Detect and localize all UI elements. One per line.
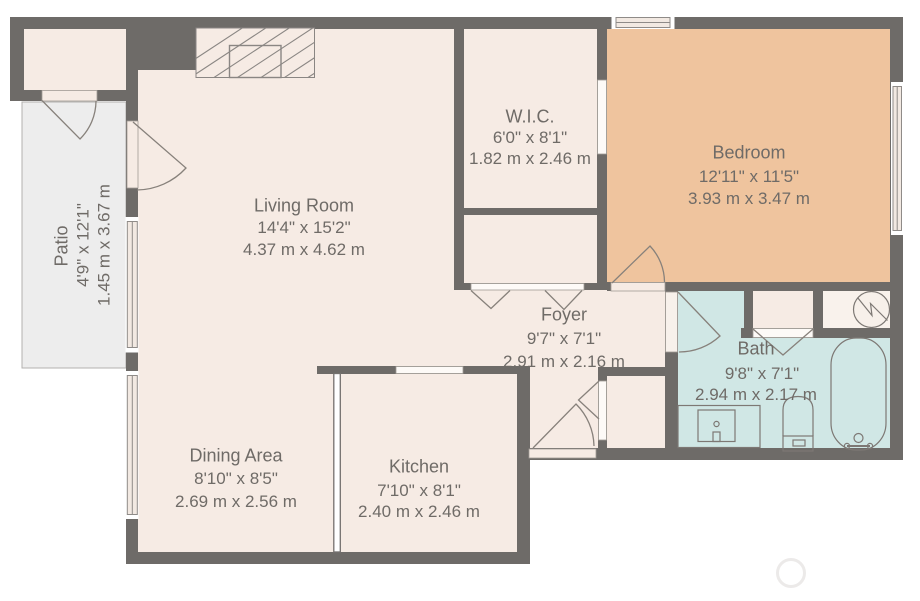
- svg-text:2.91 m x 2.16 m: 2.91 m x 2.16 m: [503, 352, 625, 371]
- svg-text:9'7" x 7'1": 9'7" x 7'1": [527, 329, 601, 348]
- svg-text:Kitchen: Kitchen: [389, 456, 449, 476]
- svg-text:Bath: Bath: [737, 338, 774, 358]
- svg-text:Living Room: Living Room: [254, 195, 354, 215]
- svg-text:8'10" x 8'5": 8'10" x 8'5": [194, 469, 278, 488]
- svg-text:Bedroom: Bedroom: [712, 142, 785, 162]
- svg-text:Foyer: Foyer: [541, 304, 587, 324]
- svg-text:2.69 m x 2.56 m: 2.69 m x 2.56 m: [175, 492, 297, 511]
- svg-text:Patio: Patio: [52, 225, 72, 266]
- svg-text:12'11" x 11'5": 12'11" x 11'5": [699, 167, 799, 186]
- svg-text:6'0" x 8'1": 6'0" x 8'1": [493, 128, 567, 147]
- svg-text:W.I.C.: W.I.C.: [506, 106, 555, 126]
- svg-text:4'9" x 12'1": 4'9" x 12'1": [74, 203, 93, 287]
- svg-text:14'4" x 15'2": 14'4" x 15'2": [257, 218, 350, 237]
- svg-text:2.40 m x 2.46 m: 2.40 m x 2.46 m: [358, 502, 480, 521]
- svg-text:7'10" x 8'1": 7'10" x 8'1": [377, 481, 461, 500]
- svg-text:3.93 m x 3.47 m: 3.93 m x 3.47 m: [688, 189, 810, 208]
- svg-text:1.82 m x 2.46 m: 1.82 m x 2.46 m: [469, 149, 591, 168]
- svg-text:9'8" x 7'1": 9'8" x 7'1": [725, 364, 799, 383]
- svg-text:4.37 m x 4.62 m: 4.37 m x 4.62 m: [243, 240, 365, 259]
- svg-text:2.94 m x 2.17 m: 2.94 m x 2.17 m: [695, 385, 817, 404]
- svg-text:Dining Area: Dining Area: [189, 445, 283, 465]
- svg-text:1.45 m x 3.67 m: 1.45 m x 3.67 m: [95, 184, 114, 306]
